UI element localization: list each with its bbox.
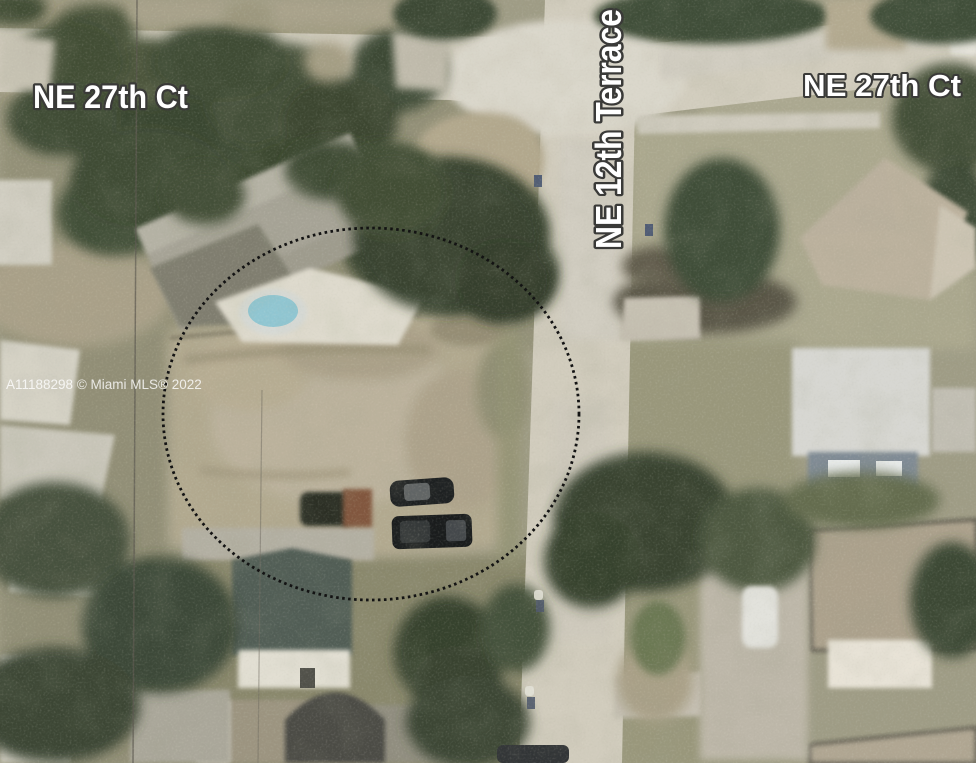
svg-text:NE 12th Terrace: NE 12th Terrace: [588, 9, 629, 249]
svg-text:A11188298 © Miami MLS® 2022: A11188298 © Miami MLS® 2022: [6, 377, 202, 392]
svg-text:NE 27th Ct: NE 27th Ct: [803, 69, 961, 103]
svg-text:NE 27th Ct: NE 27th Ct: [33, 79, 188, 115]
